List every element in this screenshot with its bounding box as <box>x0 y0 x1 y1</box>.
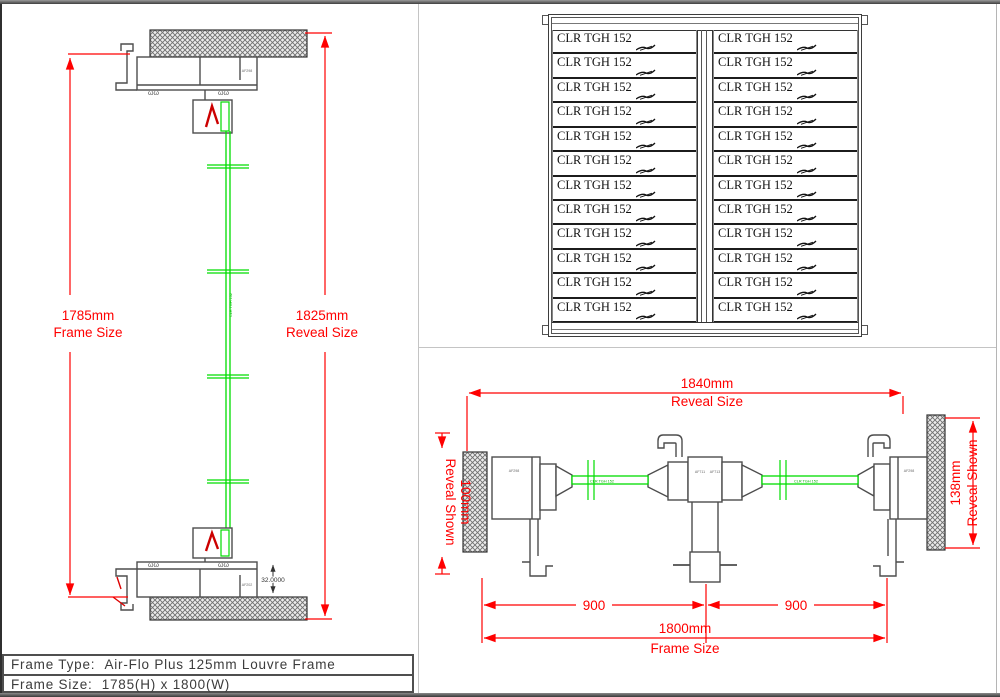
blade-tilt-icon <box>636 264 656 271</box>
sill-drainage-marks <box>113 577 125 606</box>
louvre-slat: CLR TGH 152 <box>553 128 696 152</box>
slat-glass-spec: CLR TGH 152 <box>557 251 632 266</box>
plan-reveal-label: Reveal Size <box>671 394 743 409</box>
louvre-slat: CLR TGH 152 <box>714 201 857 225</box>
drawing-sheet: ωω ωω AF298 CLR TGH 152 <box>0 0 1000 697</box>
head-frame-profile <box>116 44 257 133</box>
elevation-sill-rail <box>552 322 858 333</box>
head-screwport-symbol: ωω <box>148 90 159 97</box>
right-reveal-value: 138mm <box>948 460 963 505</box>
louvre-slat: CLR TGH 152 <box>714 152 857 176</box>
frame-type-value: Air-Flo Plus 125mm Louvre Frame <box>104 657 335 672</box>
slat-glass-spec: CLR TGH 152 <box>718 300 793 315</box>
left-reveal-value: 100mm <box>458 479 473 524</box>
frame-size-value: 1785(H) x 1800(W) <box>102 677 230 692</box>
louvre-elevation-view: CLR TGH 152 CLR TGH 152 CLR TGH 152 CLR … <box>548 14 862 337</box>
left-jamb-label: AF298 <box>509 469 520 473</box>
sill-structure-hatch <box>150 597 307 620</box>
title-block-frame-type-row: Frame Type: Air-Flo Plus 125mm Louvre Fr… <box>4 656 412 676</box>
blade-tilt-icon <box>636 93 656 100</box>
slat-glass-spec: CLR TGH 152 <box>718 129 793 144</box>
blade-tilt-icon <box>636 240 656 247</box>
mullion-label-left: AF711 <box>695 470 705 474</box>
slat-glass-spec: CLR TGH 152 <box>718 80 793 95</box>
louvre-slat: CLR TGH 152 <box>714 79 857 103</box>
right-wall-hatch <box>927 415 945 550</box>
louvre-blade-stack <box>207 131 249 530</box>
slat-glass-spec: CLR TGH 152 <box>718 275 793 290</box>
head-profile-label: AF298 <box>242 69 253 73</box>
louvre-slat: CLR TGH 152 <box>714 177 857 201</box>
left-jamb-profile <box>492 457 572 576</box>
blade-tilt-icon <box>797 240 817 247</box>
louvre-slat: CLR TGH 152 <box>714 250 857 274</box>
blade-tilt-icon <box>636 142 656 149</box>
blade-tilt-icon <box>636 215 656 222</box>
louvre-slat: CLR TGH 152 <box>553 177 696 201</box>
slat-glass-spec: CLR TGH 152 <box>557 275 632 290</box>
slat-glass-spec: CLR TGH 152 <box>557 55 632 70</box>
sill-offset-value: 32.0000 <box>261 577 285 584</box>
louvre-slat: CLR TGH 152 <box>714 54 857 78</box>
title-block: Frame Type: Air-Flo Plus 125mm Louvre Fr… <box>2 654 414 693</box>
title-block-frame-size-row: Frame Size: 1785(H) x 1800(W) <box>4 676 412 694</box>
slat-glass-spec: CLR TGH 152 <box>557 300 632 315</box>
frame-size-value: 1785mm <box>62 308 115 323</box>
blade-tilt-icon <box>636 191 656 198</box>
slat-glass-spec: CLR TGH 152 <box>718 55 793 70</box>
slat-glass-spec: CLR TGH 152 <box>718 104 793 119</box>
centre-mullion-profile <box>648 435 762 582</box>
blade-tilt-icon <box>797 69 817 76</box>
louvre-slat: CLR TGH 152 <box>553 225 696 249</box>
slat-glass-spec: CLR TGH 152 <box>718 226 793 241</box>
reveal-size-value: 1825mm <box>296 308 349 323</box>
slat-glass-spec: CLR TGH 152 <box>718 153 793 168</box>
blade-tilt-icon <box>797 167 817 174</box>
blade-tilt-icon <box>636 118 656 125</box>
louvre-slat: CLR TGH 152 <box>553 250 696 274</box>
right-jamb-label: AF298 <box>904 469 915 473</box>
louvre-slat: CLR TGH 152 <box>714 30 857 54</box>
sill-offset-dimension: 32.0000 <box>261 565 285 593</box>
bay-dim-left: 900 <box>583 598 606 613</box>
slat-glass-spec: CLR TGH 152 <box>718 251 793 266</box>
plan-frame-label: Frame Size <box>650 641 719 656</box>
louvre-slat: CLR TGH 152 <box>553 54 696 78</box>
louvre-slat: CLR TGH 152 <box>714 225 857 249</box>
slat-glass-spec: CLR TGH 152 <box>557 202 632 217</box>
blade-tilt-icon <box>636 313 656 320</box>
louvre-slat: CLR TGH 152 <box>553 79 696 103</box>
louvre-slat: CLR TGH 152 <box>553 299 696 323</box>
slat-glass-spec: CLR TGH 152 <box>557 31 632 46</box>
plan-section-view: AF298 AF711 AF713 <box>435 376 980 656</box>
elevation-mullion <box>697 30 713 323</box>
elevation-corner-cap-br <box>861 325 868 335</box>
plan-reveal-value: 1840mm <box>681 376 734 391</box>
frame-type-label: Frame Type: <box>11 657 95 672</box>
blade-tilt-icon <box>797 313 817 320</box>
louvre-slat: CLR TGH 152 <box>553 30 696 54</box>
blade-tilt-icon <box>636 69 656 76</box>
elevation-column-left: CLR TGH 152 CLR TGH 152 CLR TGH 152 CLR … <box>552 30 697 323</box>
reveal-size-label: Reveal Size <box>286 325 358 340</box>
elevation-columns: CLR TGH 152 CLR TGH 152 CLR TGH 152 CLR … <box>552 30 858 323</box>
frame-size-label: Frame Size: <box>11 677 93 692</box>
elevation-corner-cap-tr <box>861 15 868 25</box>
section-blade-text: CLR TGH 152 <box>229 293 233 317</box>
sill-screwport-symbol-2: ωω <box>218 562 229 569</box>
sill-screwport-symbol: ωω <box>148 562 159 569</box>
left-reveal-label: Reveal Shown <box>443 458 458 545</box>
sill-profile-label: AF202 <box>242 583 253 587</box>
louvre-slat: CLR TGH 152 <box>714 299 857 323</box>
frame-size-label: Frame Size <box>53 325 122 340</box>
louvre-slat: CLR TGH 152 <box>714 128 857 152</box>
louvre-slat: CLR TGH 152 <box>714 274 857 298</box>
blade-tilt-icon <box>797 118 817 125</box>
elevation-column-right: CLR TGH 152 CLR TGH 152 CLR TGH 152 CLR … <box>713 30 858 323</box>
head-screwport-symbol-2: ωω <box>218 90 229 97</box>
head-structure-hatch <box>150 30 307 57</box>
blade-tilt-icon <box>797 142 817 149</box>
slat-glass-spec: CLR TGH 152 <box>557 104 632 119</box>
plan-frame-value: 1800mm <box>659 621 712 636</box>
louvre-slat: CLR TGH 152 <box>553 103 696 127</box>
louvre-slat: CLR TGH 152 <box>553 201 696 225</box>
blade-tilt-icon <box>636 289 656 296</box>
blade-tilt-icon <box>636 167 656 174</box>
slat-glass-spec: CLR TGH 152 <box>557 226 632 241</box>
right-reveal-label: Reveal Shown <box>965 439 980 526</box>
bay-dim-right: 900 <box>785 598 808 613</box>
blade-tilt-icon <box>636 44 656 51</box>
sheet-bottom-border <box>0 693 1000 697</box>
blade-tilt-icon <box>797 44 817 51</box>
slat-glass-spec: CLR TGH 152 <box>718 178 793 193</box>
mullion-label-right: AF713 <box>710 470 721 474</box>
slat-glass-spec: CLR TGH 152 <box>557 178 632 193</box>
slat-glass-spec: CLR TGH 152 <box>718 202 793 217</box>
louvre-slat: CLR TGH 152 <box>553 274 696 298</box>
right-jamb-profile <box>858 435 927 576</box>
slat-glass-spec: CLR TGH 152 <box>557 129 632 144</box>
blade-tilt-icon <box>797 191 817 198</box>
louvre-slat: CLR TGH 152 <box>553 152 696 176</box>
slat-glass-spec: CLR TGH 152 <box>557 80 632 95</box>
blade-tilt-icon <box>797 215 817 222</box>
vertical-section-view: ωω ωω AF298 CLR TGH 152 <box>53 30 358 620</box>
slat-glass-spec: CLR TGH 152 <box>718 31 793 46</box>
blade-tilt-icon <box>797 93 817 100</box>
blade-tilt-icon <box>797 264 817 271</box>
blade-tilt-icon <box>797 289 817 296</box>
louvre-slat: CLR TGH 152 <box>714 103 857 127</box>
plan-blade-text-right: CLR TGH 152 <box>794 480 818 484</box>
plan-blade-text-left: CLR TGH 152 <box>590 480 614 484</box>
slat-glass-spec: CLR TGH 152 <box>557 153 632 168</box>
elevation-inner-frame: CLR TGH 152 CLR TGH 152 CLR TGH 152 CLR … <box>551 17 859 334</box>
